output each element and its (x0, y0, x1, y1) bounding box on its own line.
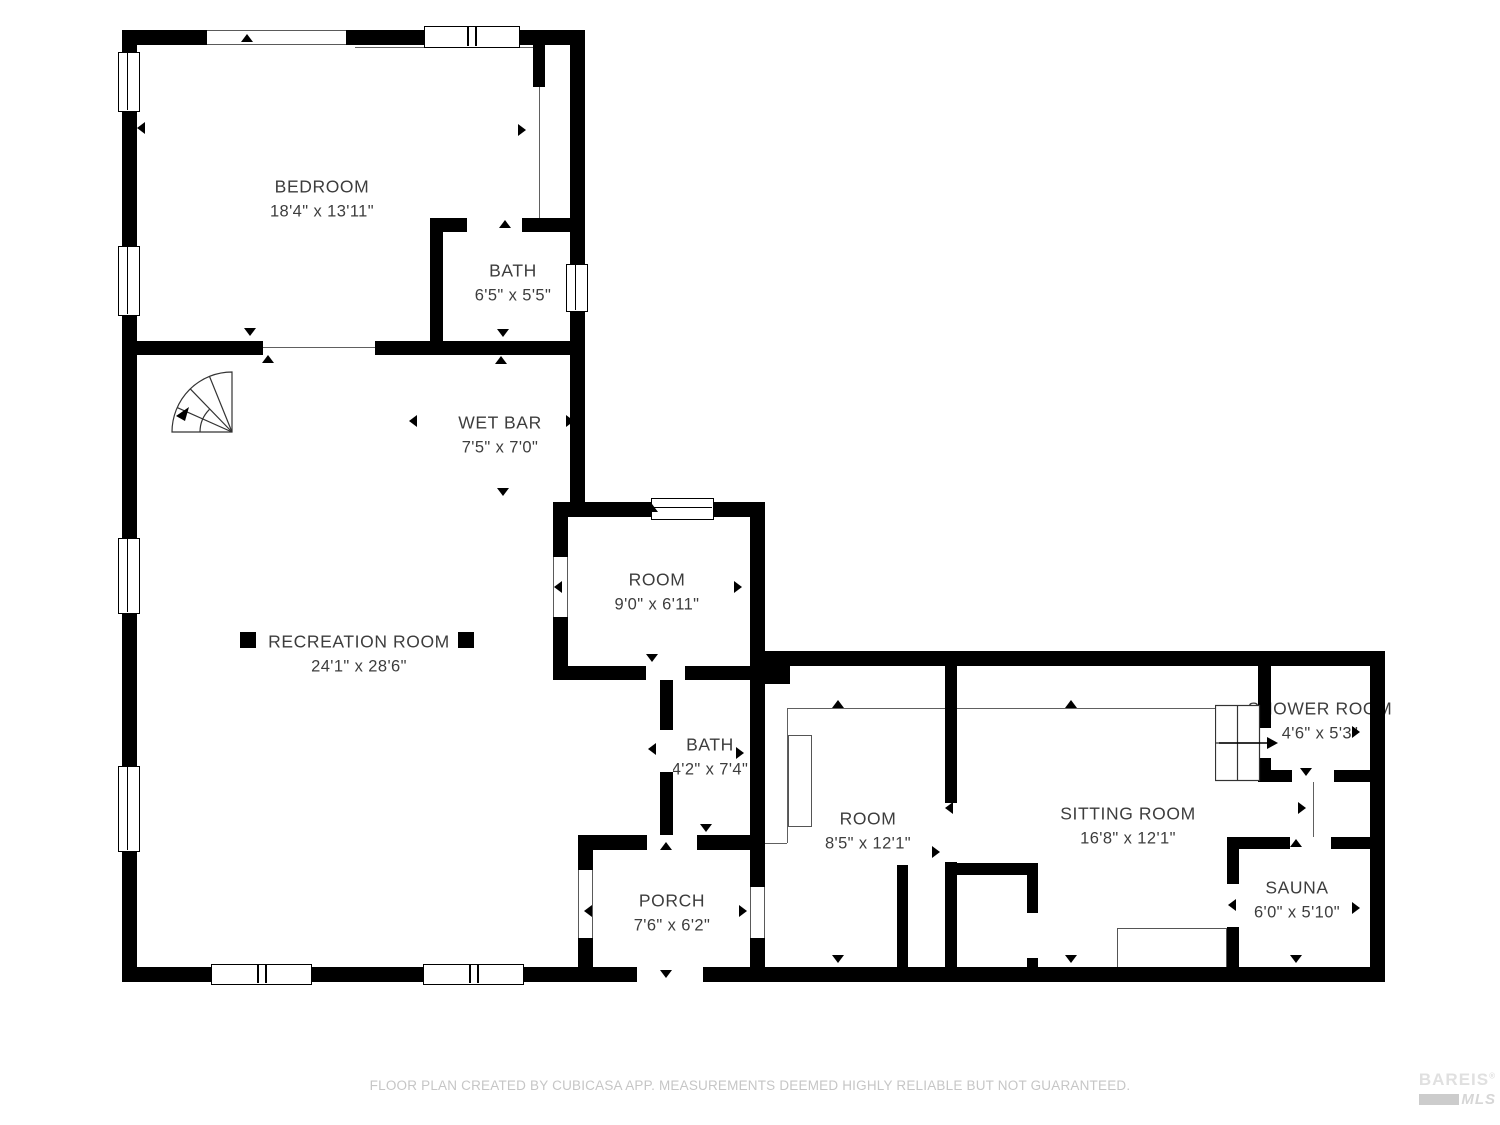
staircase-icon (1215, 703, 1279, 783)
door-opening (467, 218, 522, 232)
room-label-recreation-room: RECREATION ROOM 24'1" x 28'6" (268, 632, 450, 677)
room-dims: 18'4" x 13'11" (270, 203, 374, 222)
window-divider (127, 539, 128, 612)
wall-opening (578, 870, 593, 938)
wall-segment (945, 666, 957, 803)
wall-segment (1027, 875, 1038, 913)
window-divider (127, 767, 128, 850)
window (566, 264, 588, 312)
direction-arrow-icon (660, 842, 672, 850)
door-opening (1292, 770, 1334, 782)
direction-arrow-icon (554, 581, 562, 593)
window (118, 766, 140, 852)
registered-mark-icon: ® (1489, 1071, 1496, 1080)
room-name: ROOM (825, 809, 911, 830)
window-divider (575, 265, 576, 310)
room-name: BEDROOM (270, 177, 374, 198)
interior-line (1313, 782, 1314, 837)
direction-arrow-icon (646, 504, 658, 512)
direction-arrow-icon (497, 488, 509, 496)
logo-bar-icon (1419, 1094, 1459, 1105)
room-label-bedroom: BEDROOM 18'4" x 13'11" (270, 177, 374, 222)
direction-arrow-icon (1228, 899, 1236, 911)
window (651, 498, 714, 520)
window (118, 246, 140, 316)
wall-segment (1370, 651, 1385, 982)
direction-arrow-icon (646, 654, 658, 662)
room-dims: 7'5" x 7'0" (458, 439, 542, 458)
direction-arrow-icon (262, 355, 274, 363)
direction-arrow-icon (1352, 726, 1360, 738)
furniture-outline (1117, 928, 1227, 972)
window-divider (475, 27, 477, 46)
window (424, 26, 520, 48)
direction-arrow-icon (832, 955, 844, 963)
room-dims: 8'5" x 12'1" (825, 835, 911, 854)
room-label-bath-1: BATH 6'5" x 5'5" (475, 261, 552, 306)
logo-line2: MLS (1404, 1091, 1496, 1108)
wall-segment (957, 863, 1038, 875)
window-divider (257, 965, 259, 983)
direction-arrow-icon (734, 581, 742, 593)
room-name: WET BAR (458, 413, 542, 434)
logo-line1: BAREIS® (1404, 1070, 1496, 1090)
room-dims: 9'0" x 6'11" (615, 596, 700, 615)
floor-plan: BEDROOM 18'4" x 13'11" BATH 6'5" x 5'5" … (0, 0, 1500, 1125)
opening-line (263, 347, 375, 348)
room-label-wet-bar: WET BAR 7'5" x 7'0" (458, 413, 542, 458)
wall-opening (750, 887, 765, 938)
disclaimer-text: FLOOR PLAN CREATED BY CUBICASA APP. MEAS… (0, 1078, 1500, 1093)
direction-arrow-icon (1290, 955, 1302, 963)
direction-arrow-icon (518, 124, 526, 136)
direction-arrow-icon (739, 905, 747, 917)
bareis-mls-logo: BAREIS® MLS (1404, 1070, 1496, 1108)
direction-arrow-icon (584, 905, 592, 917)
logo-mls: MLS (1461, 1091, 1496, 1108)
door-opening (660, 730, 673, 772)
window (423, 964, 524, 985)
room-label-sitting-room: SITTING ROOM 16'8" x 12'1" (1060, 804, 1196, 849)
door-opening (647, 835, 697, 850)
direction-arrow-icon (1352, 902, 1360, 914)
column-post (240, 632, 256, 648)
room-dims: 6'0" x 5'10" (1254, 904, 1340, 923)
direction-arrow-icon (832, 700, 844, 708)
window-divider (469, 965, 471, 983)
direction-arrow-icon (1300, 768, 1312, 776)
wall-segment (945, 862, 957, 967)
wall-segment (430, 218, 443, 355)
window-divider (467, 27, 469, 46)
window-divider (652, 507, 712, 508)
direction-arrow-icon (137, 122, 145, 134)
interior-line (539, 87, 540, 218)
room-dims: 7'6" x 6'2" (634, 917, 711, 936)
window-divider (127, 53, 128, 110)
logo-brand: BAREIS (1419, 1070, 1489, 1089)
room-name: PORCH (634, 891, 711, 912)
room-dims: 4'2" x 7'4" (672, 761, 749, 780)
wall-segment (1027, 958, 1038, 967)
direction-arrow-icon (241, 34, 253, 42)
direction-arrow-icon (648, 743, 656, 755)
interior-line (765, 843, 787, 844)
wall-segment (897, 865, 908, 967)
direction-arrow-icon (244, 328, 256, 336)
window-divider (127, 247, 128, 314)
window-divider (265, 965, 267, 983)
door-opening (646, 666, 685, 680)
room-name: RECREATION ROOM (268, 632, 450, 653)
wall-segment (752, 651, 1385, 666)
wall-segment (533, 45, 545, 87)
room-dims: 16'8" x 12'1" (1060, 830, 1196, 849)
room-name: SITTING ROOM (1060, 804, 1196, 825)
direction-arrow-icon (499, 220, 511, 228)
direction-arrow-icon (1065, 700, 1077, 708)
direction-arrow-icon (1300, 653, 1312, 661)
room-label-porch: PORCH 7'6" x 6'2" (634, 891, 711, 936)
direction-arrow-icon (1290, 839, 1302, 847)
direction-arrow-icon (736, 747, 744, 759)
window (118, 538, 140, 614)
window (211, 964, 312, 985)
room-label-room-2: ROOM 8'5" x 12'1" (825, 809, 911, 854)
direction-arrow-icon (566, 415, 574, 427)
room-dims: 24'1" x 28'6" (268, 658, 450, 677)
direction-arrow-icon (1065, 955, 1077, 963)
furniture-outline (788, 735, 812, 827)
direction-arrow-icon (660, 970, 672, 978)
wall-segment (752, 967, 1385, 982)
room-label-sauna: SAUNA 6'0" x 5'10" (1254, 878, 1340, 923)
direction-arrow-icon (497, 329, 509, 337)
direction-arrow-icon (945, 802, 953, 814)
room-dims: 6'5" x 5'5" (475, 287, 552, 306)
wall-opening (263, 341, 375, 355)
window (118, 52, 140, 112)
wall-segment (752, 666, 790, 684)
direction-arrow-icon (932, 846, 940, 858)
direction-arrow-icon (700, 824, 712, 832)
wall-opening (207, 30, 346, 45)
room-name: ROOM (615, 570, 700, 591)
winder-stairs-icon (168, 366, 260, 438)
direction-arrow-icon (409, 415, 417, 427)
window-divider (477, 965, 479, 983)
direction-arrow-icon (1298, 802, 1306, 814)
interior-line (787, 708, 1215, 709)
direction-arrow-icon (495, 356, 507, 364)
room-name: BATH (475, 261, 552, 282)
room-name: SAUNA (1254, 878, 1340, 899)
column-post (458, 632, 474, 648)
room-label-room-1: ROOM 9'0" x 6'11" (615, 570, 700, 615)
